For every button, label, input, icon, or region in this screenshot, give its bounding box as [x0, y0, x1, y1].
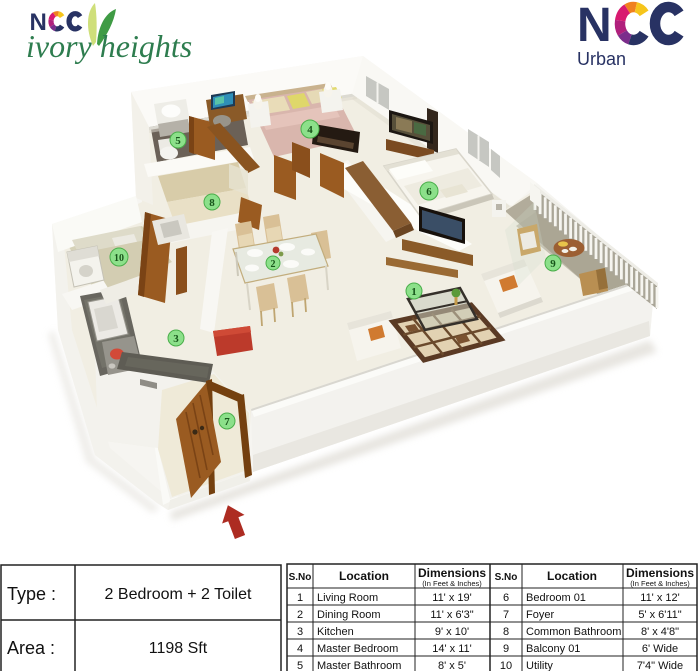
svg-text:5: 5 [297, 660, 303, 671]
svg-text:5' x 6'11": 5' x 6'11" [638, 609, 681, 621]
svg-text:11' x 6'3": 11' x 6'3" [430, 609, 473, 621]
svg-text:Dimensions: Dimensions [626, 566, 694, 580]
svg-text:14' x 11': 14' x 11' [432, 643, 471, 655]
svg-text:2: 2 [297, 609, 303, 621]
svg-text:6: 6 [503, 592, 509, 604]
svg-text:Living Room: Living Room [317, 592, 378, 604]
svg-text:ivory heights: ivory heights [26, 28, 192, 64]
svg-text:10: 10 [500, 660, 512, 671]
svg-text:11' x 12': 11' x 12' [640, 592, 679, 604]
svg-text:S.No: S.No [495, 572, 518, 583]
svg-text:8: 8 [209, 197, 215, 209]
svg-text:Master Bedroom: Master Bedroom [317, 643, 398, 655]
svg-text:1: 1 [297, 592, 303, 604]
svg-text:Bedroom 01: Bedroom 01 [526, 592, 586, 604]
svg-text:S.No: S.No [289, 572, 312, 583]
svg-text:Kitchen: Kitchen [317, 626, 354, 638]
svg-text:7: 7 [503, 609, 509, 621]
svg-text:Type :: Type : [7, 584, 56, 604]
svg-text:Dimensions: Dimensions [418, 566, 486, 580]
svg-text:8' x 4'8": 8' x 4'8" [641, 626, 679, 638]
svg-text:Urban: Urban [577, 49, 626, 69]
svg-text:8' x 5': 8' x 5' [438, 660, 466, 671]
svg-text:3: 3 [297, 626, 303, 638]
svg-text:Foyer: Foyer [526, 609, 554, 621]
svg-text:Balcony 01: Balcony 01 [526, 643, 580, 655]
svg-text:3: 3 [173, 333, 179, 345]
svg-text:4: 4 [297, 643, 303, 655]
svg-text:6: 6 [426, 186, 432, 198]
svg-text:2: 2 [271, 259, 276, 270]
svg-text:Utility: Utility [526, 660, 553, 671]
svg-text:9' x 10': 9' x 10' [435, 626, 469, 638]
svg-text:(In Feet & Inches): (In Feet & Inches) [630, 579, 690, 588]
svg-text:4: 4 [307, 124, 313, 136]
svg-text:10: 10 [114, 253, 124, 264]
svg-text:2 Bedroom + 2 Toilet: 2 Bedroom + 2 Toilet [105, 586, 252, 603]
svg-text:(In Feet & Inches): (In Feet & Inches) [422, 579, 482, 588]
svg-text:N: N [577, 0, 612, 52]
svg-text:11' x 19': 11' x 19' [432, 592, 471, 604]
svg-text:Area :: Area : [7, 638, 55, 658]
svg-text:5: 5 [175, 135, 181, 147]
svg-text:9: 9 [550, 258, 556, 270]
svg-text:7: 7 [224, 416, 230, 428]
svg-text:Location: Location [339, 569, 389, 583]
svg-text:8: 8 [503, 626, 509, 638]
svg-text:Master Bathroom: Master Bathroom [317, 660, 401, 671]
svg-text:Dining Room: Dining Room [317, 609, 381, 621]
svg-text:7'4" Wide: 7'4" Wide [637, 660, 683, 671]
svg-text:1: 1 [411, 286, 417, 298]
svg-text:9: 9 [503, 643, 509, 655]
svg-text:Location: Location [547, 569, 597, 583]
svg-text:Common Bathroom: Common Bathroom [526, 626, 621, 638]
svg-text:6' Wide: 6' Wide [642, 643, 678, 655]
svg-text:1198 Sft: 1198 Sft [149, 640, 208, 657]
